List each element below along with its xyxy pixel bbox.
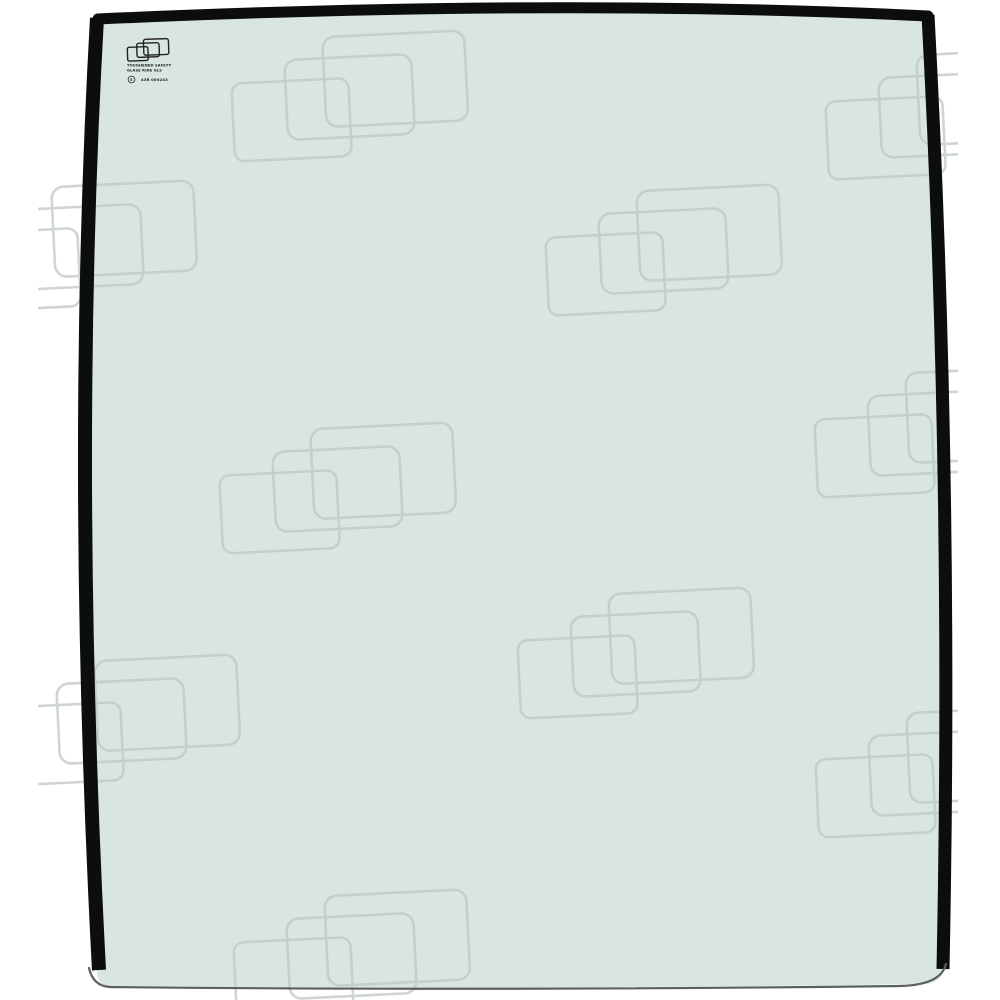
glass-pane [84, 5, 947, 988]
glass-panel-image: TOUGHENED SAFETY GLASS RIDE GLS E 43R 00… [0, 0, 1000, 1000]
stamp-line-1: TOUGHENED SAFETY [127, 64, 172, 68]
product-photo: TOUGHENED SAFETY GLASS RIDE GLS E 43R 00… [0, 0, 1000, 1000]
stamp-line-2: GLASS RIDE GLS [127, 69, 162, 73]
stamp-line-3: 43R 000243 [141, 77, 168, 82]
